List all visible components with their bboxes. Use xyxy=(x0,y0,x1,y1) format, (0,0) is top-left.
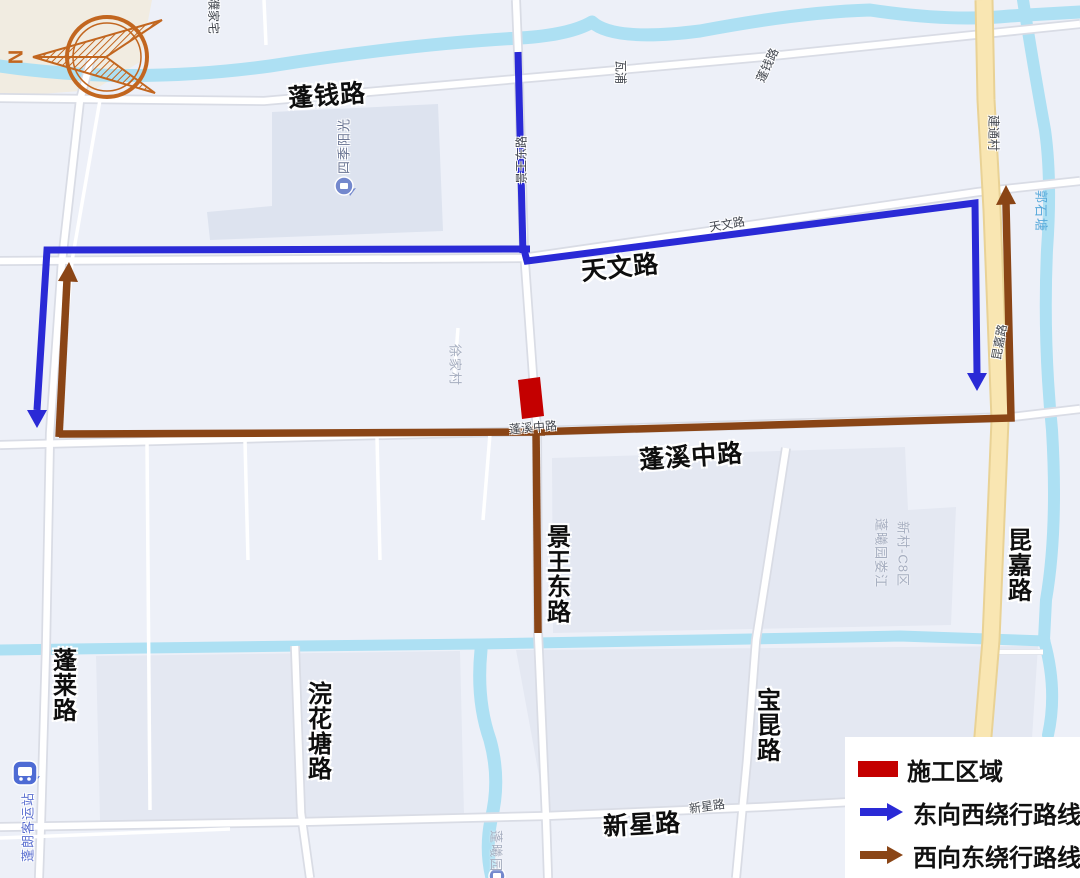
penglang-bus-station-poi-icon xyxy=(12,760,42,793)
blue-arrowhead-west xyxy=(27,410,47,428)
construction-zone-marker xyxy=(518,377,544,419)
legend-construction-label: 施工区域 xyxy=(907,752,1003,787)
pengxiyuan-poi-icon xyxy=(487,866,507,878)
river-south-branch xyxy=(480,650,496,878)
blue-arrowhead-east xyxy=(967,373,987,391)
legend: 施工区域 东向西绕行路线 西向东绕行路线 xyxy=(845,737,1080,878)
route-east-to-west xyxy=(27,52,987,428)
sijiyangguang-poi-icon xyxy=(334,176,358,205)
block-southeast-of-junction xyxy=(552,447,956,633)
river-east-lower xyxy=(1044,640,1052,735)
block-sijiyangguang xyxy=(207,104,443,240)
construction-swatch xyxy=(858,761,898,777)
legend-east-to-west-label: 东向西绕行路线 xyxy=(913,795,1080,830)
detour-map: 蓬钱路天文路蓬溪中路新星路景王东路蓬莱路浣花塘路宝昆路昆嘉路景王东路瓦浦蓬钱路天… xyxy=(0,0,1080,878)
legend-row-west-to-east: 西向东绕行路线 xyxy=(858,835,1080,875)
brown-arrow-icon xyxy=(858,843,904,867)
legend-west-to-east-label: 西向东绕行路线 xyxy=(913,838,1080,873)
blue-arrow-icon xyxy=(858,800,904,824)
legend-row-east-to-west: 东向西绕行路线 xyxy=(858,792,1080,832)
legend-row-construction: 施工区域 xyxy=(858,749,1080,789)
river-east-guoshitang xyxy=(1023,0,1054,640)
